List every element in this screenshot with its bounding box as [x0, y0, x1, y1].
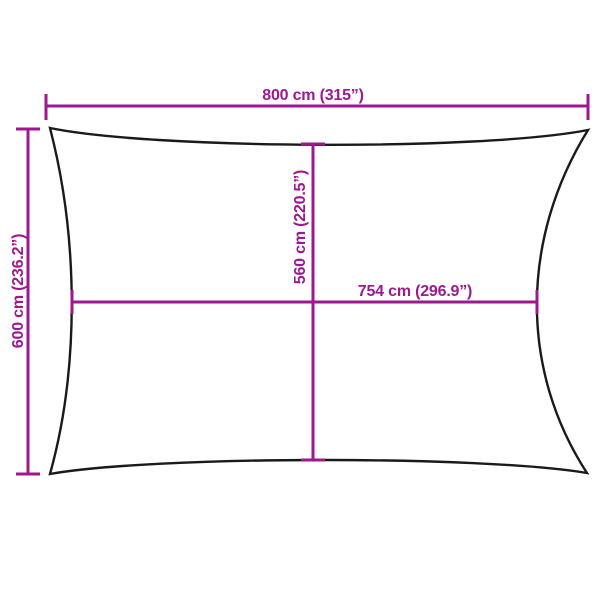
- dimension-diagram: 800 cm (315”) 600 cm (236.2”) 560 cm (22…: [0, 0, 600, 600]
- inner-width-dimension-label: 754 cm (296.9”): [358, 283, 472, 300]
- diagram-svg: 800 cm (315”) 600 cm (236.2”) 560 cm (22…: [0, 0, 600, 600]
- outer-width-dimension-label: 800 cm (315”): [262, 87, 363, 104]
- inner-height-dimension-label: 560 cm (220.5”): [292, 170, 309, 284]
- outer-height-dimension: 600 cm (236.2”): [10, 129, 40, 474]
- outer-height-dimension-label: 600 cm (236.2”): [10, 234, 27, 348]
- outer-width-dimension: 800 cm (315”): [46, 87, 588, 120]
